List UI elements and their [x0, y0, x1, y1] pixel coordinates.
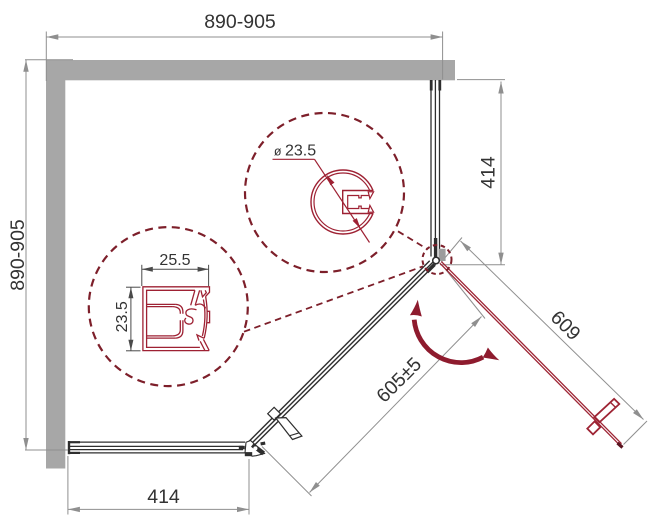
svg-text:23.5: 23.5: [114, 301, 131, 332]
svg-text:890-905: 890-905: [204, 11, 276, 33]
svg-text:ø 23.5: ø 23.5: [274, 142, 316, 159]
svg-text:414: 414: [147, 486, 180, 508]
svg-text:890-905: 890-905: [7, 219, 29, 291]
svg-text:25.5: 25.5: [159, 252, 190, 269]
svg-text:414: 414: [478, 156, 500, 189]
